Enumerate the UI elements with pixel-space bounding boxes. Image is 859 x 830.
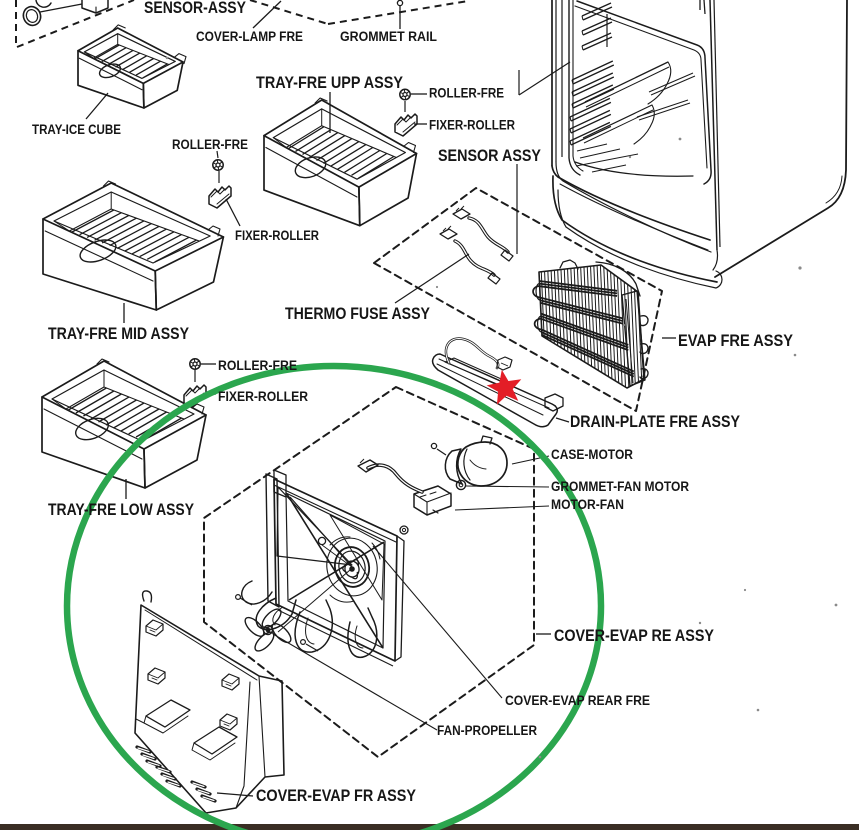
svg-text:FIXER-ROLLER: FIXER-ROLLER	[218, 389, 308, 404]
svg-text:ROLLER-FRE: ROLLER-FRE	[429, 86, 504, 101]
svg-text:TRAY-ICE CUBE: TRAY-ICE CUBE	[32, 122, 121, 137]
svg-text:CASE-MOTOR: CASE-MOTOR	[551, 447, 633, 462]
svg-text:FAN-PROPELLER: FAN-PROPELLER	[437, 723, 537, 738]
svg-text:GROMMET-FAN MOTOR: GROMMET-FAN MOTOR	[551, 479, 689, 494]
svg-text:TRAY-FRE MID ASSY: TRAY-FRE MID ASSY	[48, 324, 190, 343]
svg-text:MOTOR-FAN: MOTOR-FAN	[551, 497, 624, 512]
svg-text:FIXER-ROLLER: FIXER-ROLLER	[429, 118, 515, 133]
svg-text:THERMO FUSE ASSY: THERMO FUSE ASSY	[285, 304, 431, 323]
svg-text:TRAY-FRE LOW ASSY: TRAY-FRE LOW ASSY	[48, 500, 195, 519]
svg-text:ROLLER-FRE: ROLLER-FRE	[172, 137, 248, 152]
svg-text:EVAP FRE ASSY: EVAP FRE ASSY	[678, 331, 794, 350]
svg-text:SENSOR-ASSY: SENSOR-ASSY	[144, 0, 247, 17]
svg-text:GROMMET RAIL: GROMMET RAIL	[340, 29, 437, 44]
svg-text:DRAIN-PLATE FRE ASSY: DRAIN-PLATE FRE ASSY	[570, 412, 741, 431]
svg-text:TRAY-FRE UPP ASSY: TRAY-FRE UPP ASSY	[256, 73, 404, 92]
svg-text:COVER-LAMP FRE: COVER-LAMP FRE	[196, 29, 303, 44]
svg-text:SENSOR ASSY: SENSOR ASSY	[438, 146, 542, 165]
svg-text:FIXER-ROLLER: FIXER-ROLLER	[235, 228, 319, 243]
svg-text:ROLLER-FRE: ROLLER-FRE	[218, 358, 297, 373]
svg-text:COVER-EVAP REAR FRE: COVER-EVAP REAR FRE	[505, 693, 650, 708]
svg-text:COVER-EVAP FR ASSY: COVER-EVAP FR ASSY	[256, 786, 417, 805]
svg-text:COVER-EVAP RE ASSY: COVER-EVAP RE ASSY	[554, 626, 715, 645]
